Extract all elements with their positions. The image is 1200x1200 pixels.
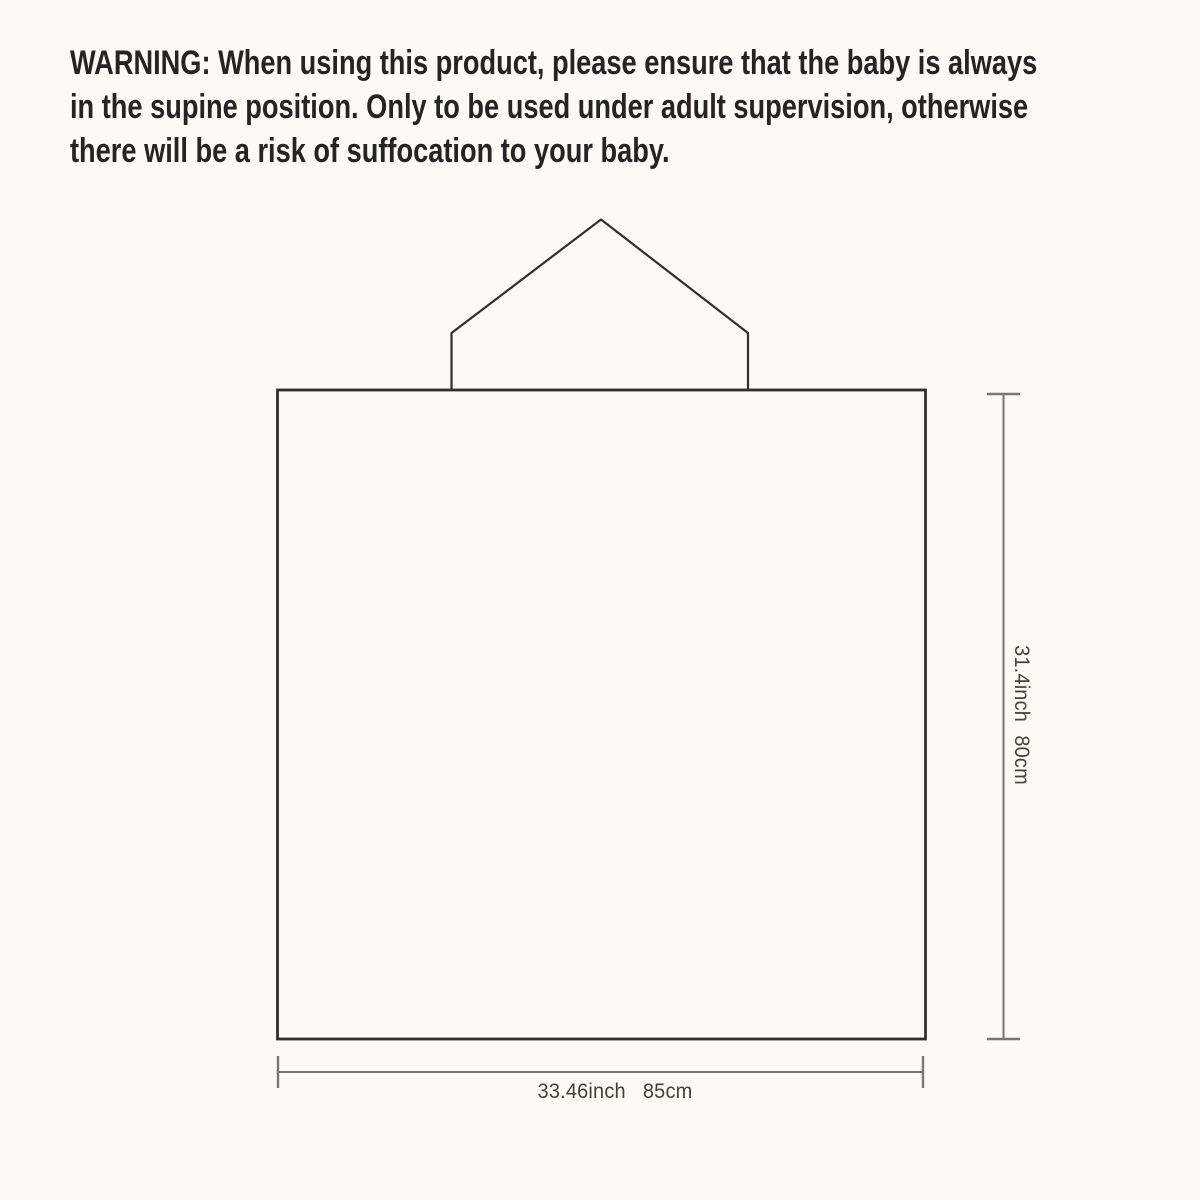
width-dimension-label: 33.46inch 85cm: [538, 1080, 693, 1104]
product-spec-page: WARNING: When using this product, please…: [0, 0, 1200, 1200]
product-dimension-diagram: [0, 0, 1200, 1200]
width-centimeters-value: 85cm: [643, 1080, 693, 1104]
height-centimeters-value: 80cm: [1009, 735, 1033, 785]
height-inches-value: 31.4inch: [1009, 645, 1033, 722]
height-dimension-label: 31.4inch 80cm: [1009, 645, 1033, 785]
hood-outline: [452, 220, 749, 391]
blanket-outline: [278, 390, 926, 1039]
width-inches-value: 33.46inch: [538, 1080, 626, 1104]
